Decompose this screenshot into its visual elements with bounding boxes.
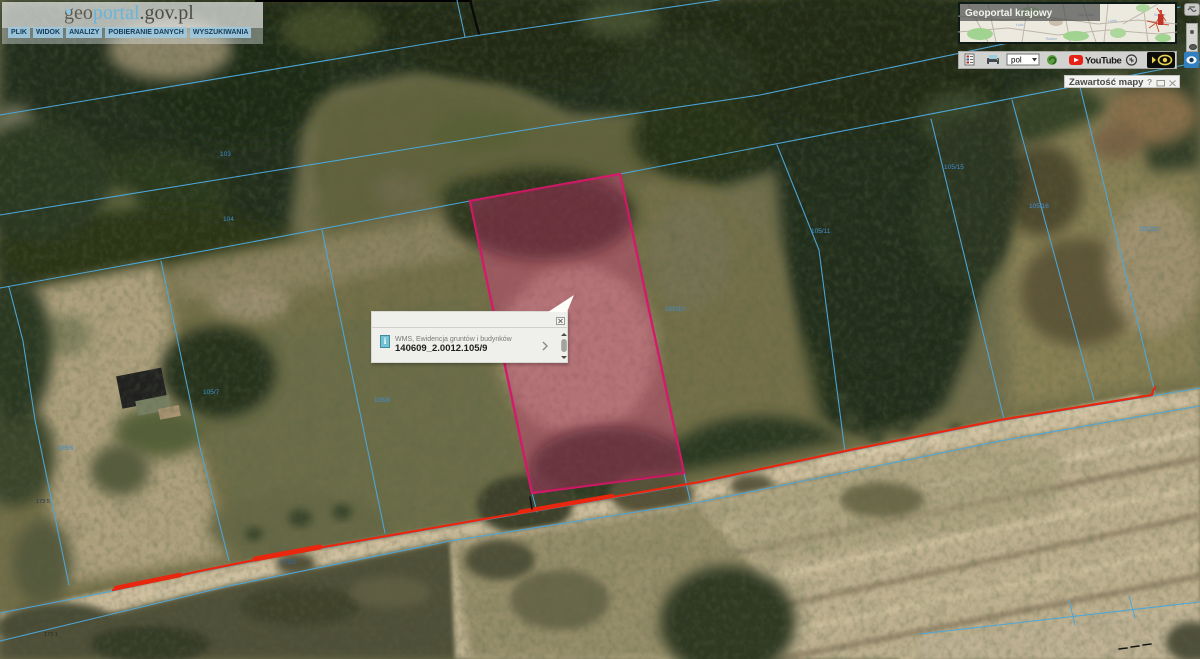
svg-text:105/7: 105/7: [203, 389, 220, 396]
svg-text:pol: pol: [1011, 56, 1022, 65]
svg-text:103: 103: [220, 151, 231, 158]
svg-text:Łódź: Łódź: [1016, 23, 1024, 27]
svg-text:105/11: 105/11: [811, 228, 831, 235]
svg-text:105/13: 105/13: [1139, 226, 1159, 233]
svg-text:173 5: 173 5: [36, 499, 50, 505]
svg-text:Geoportal krajowy: Geoportal krajowy: [965, 8, 1053, 19]
svg-text:105/8: 105/8: [374, 397, 391, 404]
svg-text:105/15: 105/15: [944, 164, 964, 171]
svg-text:173 1: 173 1: [44, 632, 58, 638]
svg-text:105/10: 105/10: [665, 306, 685, 313]
svg-text:105/6: 105/6: [57, 445, 74, 452]
svg-text:YouTube: YouTube: [1085, 56, 1122, 67]
svg-text:Radom: Radom: [1046, 37, 1057, 41]
svg-text:173/2: 173/2: [280, 559, 297, 566]
svg-text:105/16: 105/16: [1029, 203, 1049, 210]
svg-text:104: 104: [223, 216, 234, 223]
svg-text:Lublin: Lublin: [1108, 19, 1117, 23]
